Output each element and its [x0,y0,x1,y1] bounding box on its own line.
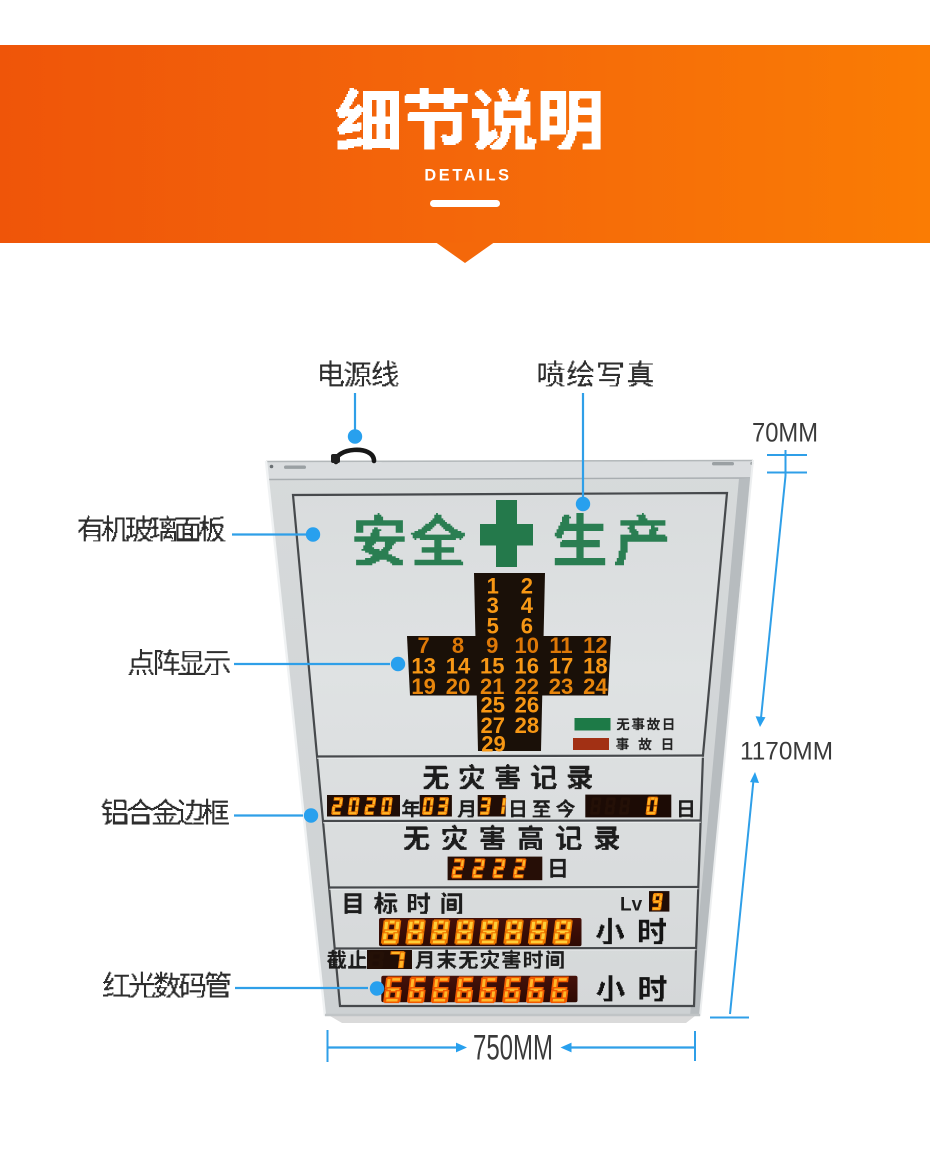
svg-text:DETAILS: DETAILS [424,167,511,185]
svg-text:24: 24 [583,674,608,699]
svg-text:29: 29 [481,732,505,757]
svg-text:1170MM: 1170MM [740,738,833,766]
svg-text:750MM: 750MM [473,1029,553,1068]
svg-text:23: 23 [549,674,573,699]
svg-text:28: 28 [515,713,539,738]
svg-text:19: 19 [411,674,435,699]
svg-text:Lv: Lv [620,895,643,916]
svg-text:70MM: 70MM [752,418,818,448]
svg-text:20: 20 [446,674,470,699]
